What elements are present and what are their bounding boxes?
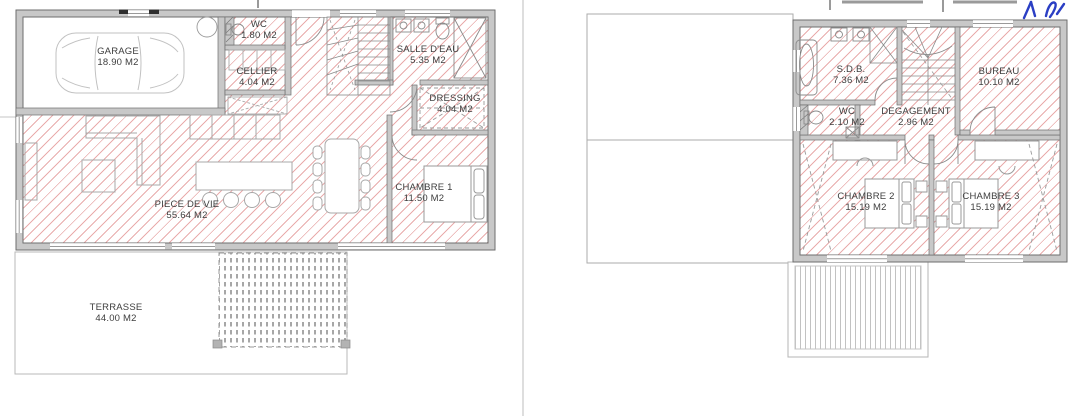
pen-mark (1024, 2, 1064, 18)
entry-door (292, 10, 330, 45)
floor-plan-sheet: GARAGE 18.90 M2 WC 1.80 M2 CELLIER 4.04 … (0, 0, 1079, 416)
room-area: 1.80 M2 (241, 30, 277, 41)
room-label-dressing: DRESSING 4.04 M2 (429, 93, 480, 115)
room-area: 44.00 M2 (90, 313, 143, 324)
room-name: CHAMBRE 3 (962, 191, 1019, 202)
room-name: CHAMBRE 1 (395, 182, 452, 193)
room-area: 15.19 M2 (837, 202, 894, 213)
room-label-garage: GARAGE 18.90 M2 (97, 46, 139, 68)
living-room-furniture (25, 115, 292, 208)
room-name: SALLE D'EAU (397, 44, 460, 55)
room-label-chambre1: CHAMBRE 1 11.50 M2 (395, 182, 452, 204)
room-area: 55.64 M2 (155, 210, 220, 221)
room-name: BUREAU (978, 66, 1019, 77)
room-label-bureau: BUREAU 10.10 M2 (978, 66, 1019, 88)
room-area: 2.96 M2 (881, 117, 951, 128)
room-area: 7.36 M2 (833, 75, 869, 86)
room-label-terrasse: TERRASSE 44.00 M2 (90, 302, 143, 324)
room-label-wc-rdc: WC 1.80 M2 (241, 19, 277, 41)
room-name: DEGAGEMENT (881, 106, 951, 117)
stair-closet (870, 27, 897, 63)
room-label-degagement: DEGAGEMENT 2.96 M2 (881, 106, 951, 128)
room-label-chambre2: CHAMBRE 2 15.19 M2 (837, 191, 894, 213)
room-label-piece-de-vie: PIECE DE VIE 55.64 M2 (155, 199, 220, 221)
room-name: TERRASSE (90, 302, 143, 313)
pergola-area (219, 253, 347, 347)
room-area: 11.50 M2 (395, 193, 452, 204)
room-label-cellier: CELLIER 4.04 M2 (236, 66, 277, 88)
water-heater (197, 17, 217, 37)
room-area: 2.10 M2 (829, 117, 865, 128)
bedroom1-door (392, 135, 417, 160)
room-area: 15.19 M2 (962, 202, 1019, 213)
room-area: 18.90 M2 (97, 57, 139, 68)
room-name: CHAMBRE 2 (837, 191, 894, 202)
room-area: 5.35 M2 (397, 55, 460, 66)
bedroom-desks (833, 141, 1039, 174)
room-label-salle-deau: SALLE D'EAU 5.35 M2 (397, 44, 460, 66)
room-label-wc-etage: WC 2.10 M2 (829, 106, 865, 128)
room-label-sdb: S.D.B. 7.36 M2 (833, 64, 869, 86)
room-area: 4.04 M2 (429, 104, 480, 115)
room-name: WC (829, 106, 865, 117)
room-label-chambre3: CHAMBRE 3 15.19 M2 (962, 191, 1019, 213)
room-name: PIECE DE VIE (155, 199, 220, 210)
room-name: CELLIER (236, 66, 277, 77)
room-name: WC (241, 19, 277, 30)
deck-roof (788, 262, 928, 357)
room-area: 4.04 M2 (236, 77, 277, 88)
room-area: 10.10 M2 (978, 77, 1019, 88)
dining-table (313, 139, 370, 213)
room-name: S.D.B. (833, 64, 869, 75)
room-name: GARAGE (97, 46, 139, 57)
room-name: DRESSING (429, 93, 480, 104)
roof-outline (587, 14, 793, 263)
staircase-upper (902, 27, 955, 105)
